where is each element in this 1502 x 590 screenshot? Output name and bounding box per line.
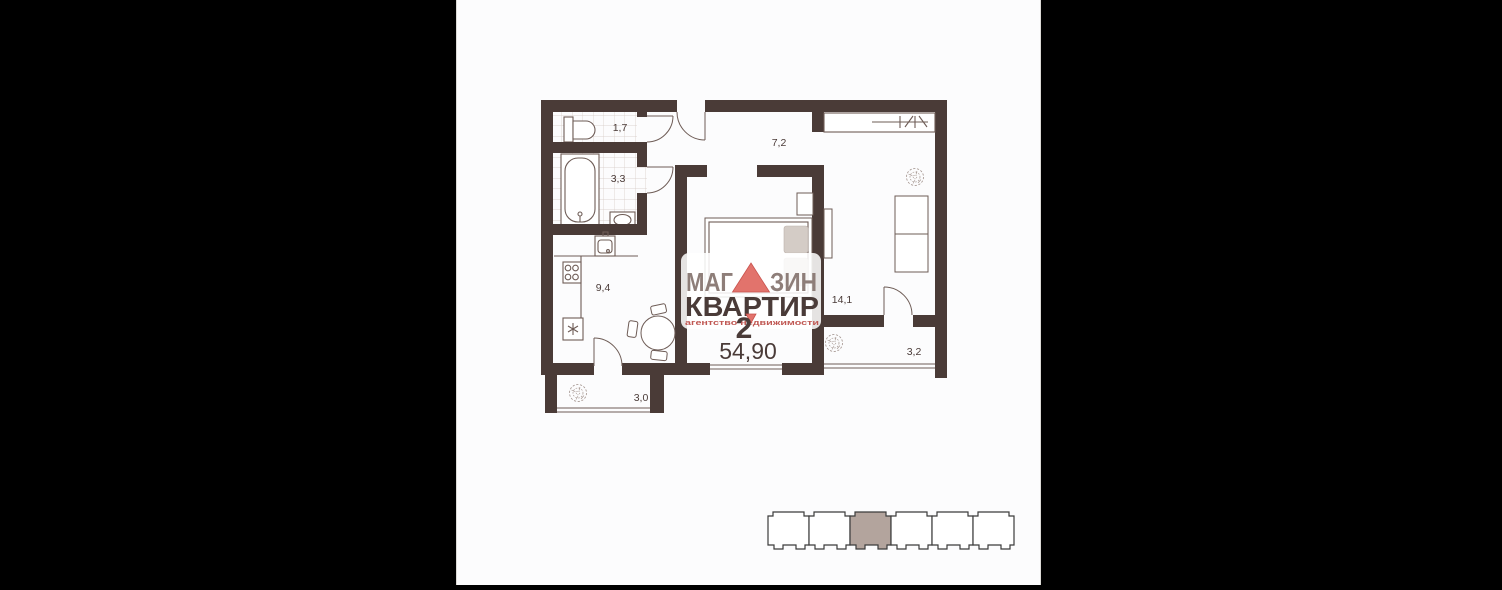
building-section (768, 512, 809, 549)
label-bathroom: 3,3 (611, 173, 626, 185)
plant-icon (570, 385, 587, 402)
wardrobe-icon (824, 113, 935, 132)
bathtub-icon (561, 154, 599, 226)
building-section (850, 512, 891, 549)
building-section (891, 512, 932, 549)
wc-door (647, 116, 673, 142)
building-indicator (768, 512, 1014, 549)
label-balcony-right: 3,2 (907, 346, 922, 358)
letterbox-right (1041, 0, 1502, 585)
floor-plan: 1,7 3,3 7,2 9,4 14,1 3,2 3,0 МАГ ЗИН КВА… (457, 0, 1042, 585)
stove-icon (563, 262, 581, 283)
label-balcony-left: 3,0 (634, 392, 649, 404)
apartment-total-area: 54,90 (719, 338, 777, 364)
label-living-room: 14,1 (832, 294, 853, 306)
letterbox-left (0, 0, 456, 585)
tv-shelf-icon (824, 209, 832, 258)
windows (557, 364, 935, 412)
floor-plan-canvas: 1,7 3,3 7,2 9,4 14,1 3,2 3,0 МАГ ЗИН КВА… (456, 0, 1041, 585)
nightstand-icon (797, 193, 813, 215)
label-wc: 1,7 (613, 122, 628, 134)
label-kitchen: 9,4 (596, 282, 611, 294)
livingroom-balcony-door (884, 287, 912, 315)
sofa-icon (895, 196, 928, 272)
plant-icon (826, 335, 843, 352)
bathroom-door (647, 167, 673, 193)
label-hallway: 7,2 (772, 137, 787, 149)
kitchen-sink-icon (595, 232, 615, 256)
fridge-icon (563, 318, 583, 340)
entrance-door (677, 112, 705, 140)
building-section (973, 512, 1014, 549)
plant-icon (907, 169, 924, 186)
building-section (809, 512, 850, 549)
kitchen-balcony-door (594, 338, 622, 366)
building-section (932, 512, 973, 549)
dining-table-icon (627, 303, 675, 360)
